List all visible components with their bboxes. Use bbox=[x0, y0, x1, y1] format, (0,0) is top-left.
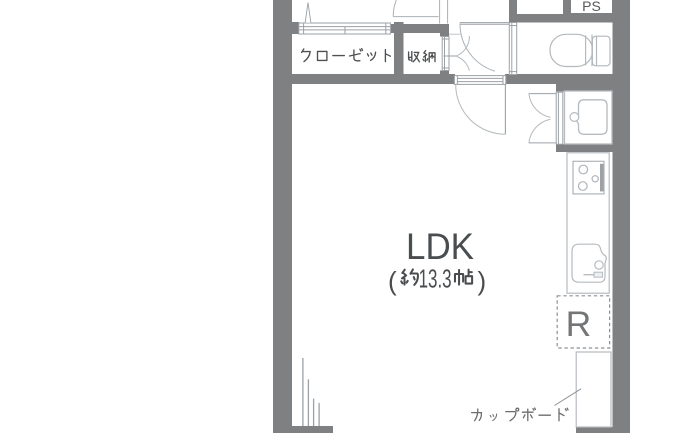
svg-text:R: R bbox=[566, 304, 592, 344]
svg-text:(: ( bbox=[388, 266, 397, 296]
svg-text:): ) bbox=[478, 266, 487, 296]
svg-text:13.3: 13.3 bbox=[419, 264, 452, 294]
svg-text:PS: PS bbox=[582, 0, 601, 14]
svg-text:LDK: LDK bbox=[406, 226, 474, 267]
